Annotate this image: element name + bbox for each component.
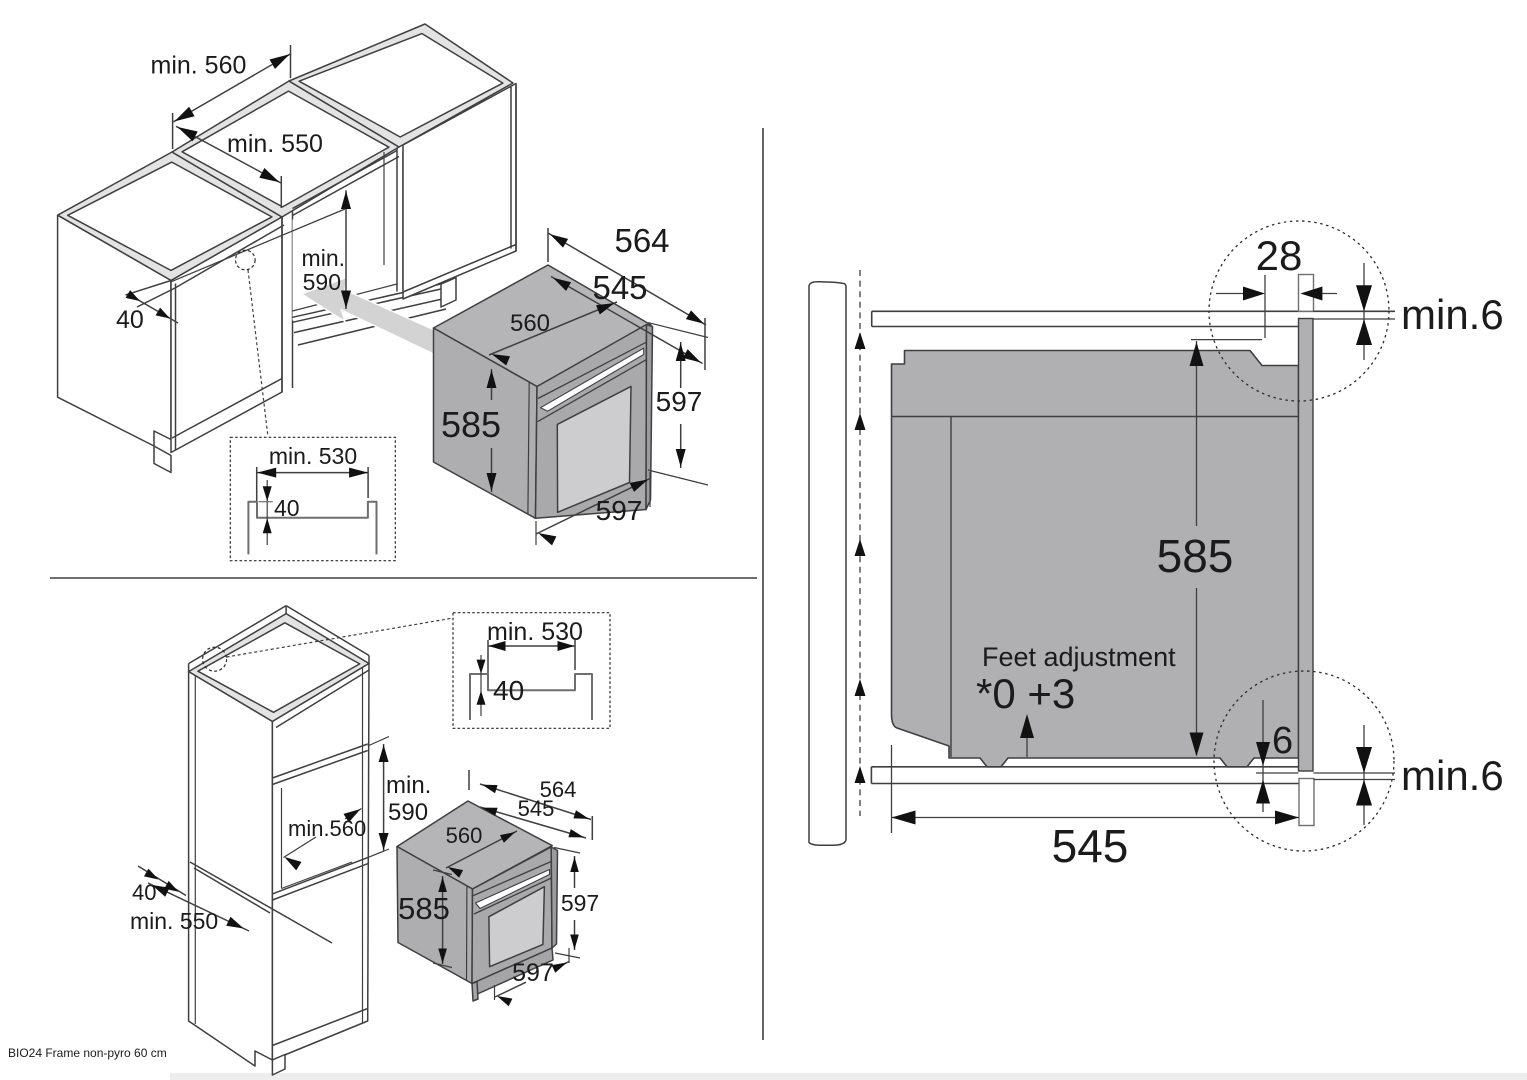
svg-text:BIO24 Frame non-pyro 60 cm: BIO24 Frame non-pyro 60 cm xyxy=(8,1046,167,1060)
svg-text:560: 560 xyxy=(510,310,550,337)
svg-text:min. 560: min. 560 xyxy=(151,52,247,80)
svg-text:545: 545 xyxy=(1052,820,1129,872)
svg-text:28: 28 xyxy=(1256,232,1303,279)
svg-text:40: 40 xyxy=(493,675,524,706)
svg-text:597: 597 xyxy=(656,386,703,417)
svg-text:min.560: min.560 xyxy=(288,816,366,841)
svg-text:min. 550: min. 550 xyxy=(130,908,218,934)
svg-text:585: 585 xyxy=(441,404,501,445)
svg-text:*0 +3: *0 +3 xyxy=(976,670,1075,717)
svg-text:564: 564 xyxy=(614,222,669,259)
svg-text:585: 585 xyxy=(398,891,450,926)
svg-text:590: 590 xyxy=(388,799,428,826)
svg-text:min.6: min.6 xyxy=(1401,752,1504,799)
svg-text:597: 597 xyxy=(512,959,554,987)
svg-text:545: 545 xyxy=(518,796,555,821)
svg-text:min. 530: min. 530 xyxy=(269,443,357,469)
svg-text:40: 40 xyxy=(274,495,300,521)
svg-text:585: 585 xyxy=(1157,530,1234,582)
svg-text:40: 40 xyxy=(132,880,156,905)
svg-text:40: 40 xyxy=(116,306,144,334)
svg-text:min.6: min.6 xyxy=(1401,291,1504,338)
svg-text:min.: min. xyxy=(386,772,431,799)
svg-text:6: 6 xyxy=(1272,720,1293,762)
svg-text:560: 560 xyxy=(446,823,483,848)
svg-text:597: 597 xyxy=(561,890,599,916)
svg-text:min. 530: min. 530 xyxy=(487,618,583,646)
svg-text:597: 597 xyxy=(596,495,643,526)
svg-text:min. 550: min. 550 xyxy=(227,130,323,158)
svg-text:min.: min. xyxy=(302,245,345,271)
svg-text:545: 545 xyxy=(592,269,647,306)
svg-text:590: 590 xyxy=(303,269,341,295)
svg-text:Feet adjustment: Feet adjustment xyxy=(982,642,1176,672)
